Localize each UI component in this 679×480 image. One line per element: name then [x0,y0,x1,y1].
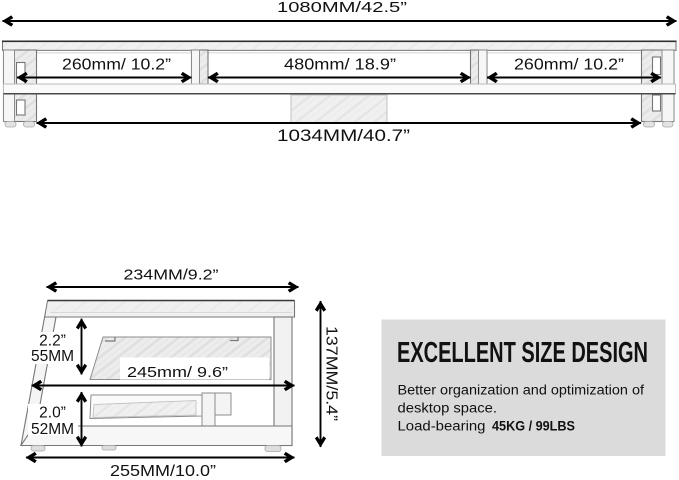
svg-text:2.0”: 2.0” [39,405,66,422]
svg-text:260mm/ 10.2”: 260mm/ 10.2” [514,56,624,73]
svg-text:Better organization and optimi: Better organization and optimization of [398,383,645,399]
svg-text:2.2”: 2.2” [39,333,66,350]
svg-text:255MM/10.0”: 255MM/10.0” [110,463,216,480]
svg-text:45KG / 99LBS: 45KG / 99LBS [492,419,575,435]
svg-text:1080MM/42.5”: 1080MM/42.5” [277,0,407,16]
svg-text:55MM: 55MM [31,348,74,365]
svg-text:EXCELLENT SIZE DESIGN: EXCELLENT SIZE DESIGN [397,337,648,369]
svg-text:260mm/ 10.2”: 260mm/ 10.2” [62,56,171,73]
svg-text:Load-bearing: Load-bearing [398,419,486,435]
svg-text:137MM/5.4”: 137MM/5.4” [323,326,340,421]
svg-text:52MM: 52MM [31,421,74,438]
svg-text:desktop space.: desktop space. [398,400,498,416]
svg-text:1034MM/40.7”: 1034MM/40.7” [277,126,410,145]
svg-text:480mm/ 18.9”: 480mm/ 18.9” [284,56,396,73]
svg-text:234MM/9.2”: 234MM/9.2” [124,267,219,284]
svg-text:245mm/ 9.6”: 245mm/ 9.6” [127,364,228,381]
